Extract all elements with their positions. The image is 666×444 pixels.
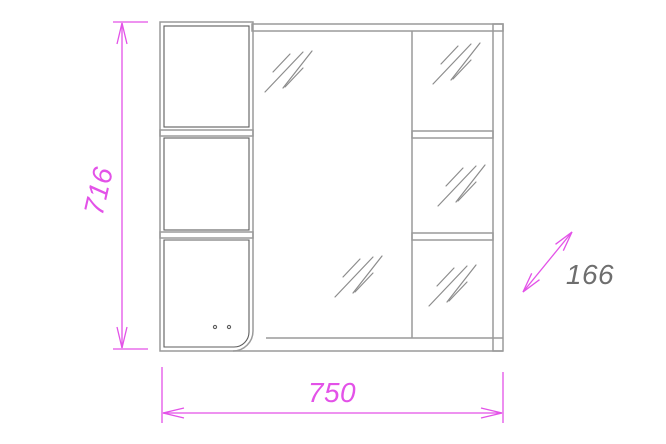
cabinet-doors xyxy=(164,26,249,347)
door-bottom xyxy=(164,240,249,347)
handle-hole-dot-left xyxy=(213,325,216,328)
right-column-divider-top xyxy=(412,131,493,138)
glass-hatch-icon-mirror-bottom xyxy=(335,256,382,297)
door-top xyxy=(164,26,249,127)
bottom-shelf xyxy=(233,338,503,351)
handle-hole-dot-right xyxy=(227,325,230,328)
glass-hatch-icon-shelf-top xyxy=(433,43,480,84)
depth-dimension-line xyxy=(523,232,572,292)
left-column-divider-bottom xyxy=(160,232,253,238)
left-column-divider-top xyxy=(160,130,253,136)
left-column-frame xyxy=(160,22,253,351)
height-dimension-label: 716 xyxy=(78,164,119,218)
glass-hatch-icon-shelf-middle xyxy=(438,165,485,206)
height-dimension xyxy=(113,22,148,349)
depth-dimension-label: 166 xyxy=(566,259,614,290)
right-side-panel xyxy=(493,24,503,351)
cad-canvas: 716 750 166 xyxy=(0,0,666,444)
door-middle xyxy=(164,138,249,230)
glass-hatches xyxy=(265,43,485,306)
right-column-divider-bottom xyxy=(412,233,493,240)
glass-hatch-icon-mirror-top xyxy=(265,51,312,92)
top-panel xyxy=(252,24,503,31)
glass-hatch-icon-shelf-bottom xyxy=(429,265,476,306)
drawing-stage: 716 750 166 xyxy=(0,0,666,444)
cabinet-carcass xyxy=(160,22,503,351)
depth-dimension xyxy=(523,232,572,292)
width-dimension-label: 750 xyxy=(308,377,356,408)
